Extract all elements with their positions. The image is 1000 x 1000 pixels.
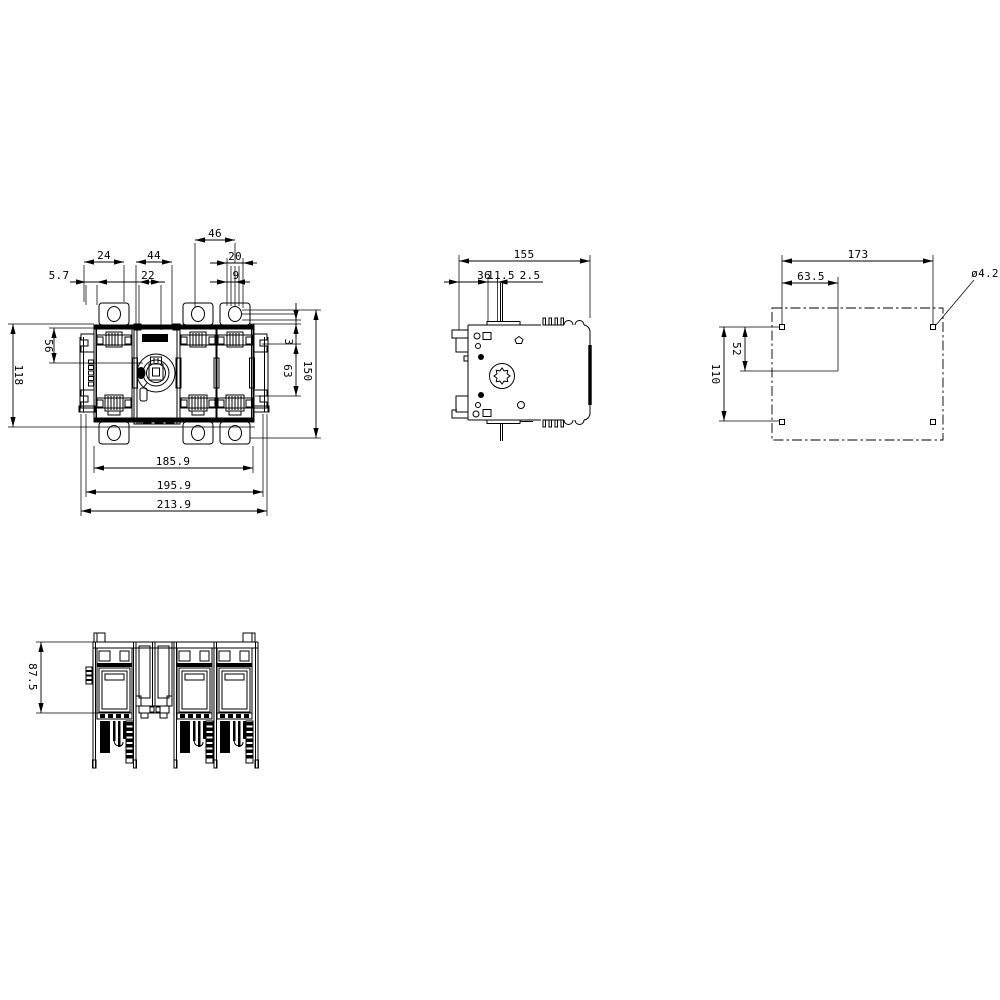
dim-22-label: 22 bbox=[141, 269, 155, 282]
drill-hole-bottom-left bbox=[780, 420, 785, 425]
dim-173-label: 173 bbox=[848, 248, 869, 261]
drill-hole-top-left bbox=[780, 325, 785, 330]
dim-56-label: 56 bbox=[42, 339, 55, 353]
dim-5_7-label: 5.7 bbox=[49, 269, 70, 282]
dim-3-label: 3 bbox=[282, 339, 295, 346]
dim-87_5-label: 87.5 bbox=[26, 663, 39, 691]
label-plate bbox=[142, 334, 168, 342]
dim-20-label: 20 bbox=[228, 250, 242, 263]
dim-9-label: 9 bbox=[233, 269, 240, 282]
drill-hole-top-right bbox=[931, 325, 936, 330]
dim-46-label: 46 bbox=[208, 227, 222, 240]
dim-213_9-label: 213.9 bbox=[157, 498, 192, 511]
dim-2_5-label: 2.5 bbox=[520, 269, 541, 282]
dim-150-label: 150 bbox=[301, 361, 314, 382]
drill-hole-bottom-right bbox=[931, 420, 936, 425]
dim-110-label: 110 bbox=[709, 364, 722, 385]
dim-52-label: 52 bbox=[730, 342, 743, 356]
dim-4_2-label: ø4.2 bbox=[971, 267, 999, 280]
dim-44-label: 44 bbox=[147, 249, 161, 262]
dim-118-label: 118 bbox=[12, 365, 25, 386]
dim-63-label: 63 bbox=[281, 364, 294, 378]
dim-195_9-label: 195.9 bbox=[157, 479, 192, 492]
dim-155-label: 155 bbox=[514, 248, 535, 261]
dim-11_5-label: 11.5 bbox=[487, 269, 515, 282]
dim-185_9-label: 185.9 bbox=[156, 455, 191, 468]
technical-drawing: 46 24 44 20 5.7 bbox=[0, 0, 1000, 1000]
dim-63_5-label: 63.5 bbox=[797, 270, 825, 283]
dim-24-label: 24 bbox=[97, 249, 111, 262]
page-background bbox=[0, 0, 1000, 1000]
